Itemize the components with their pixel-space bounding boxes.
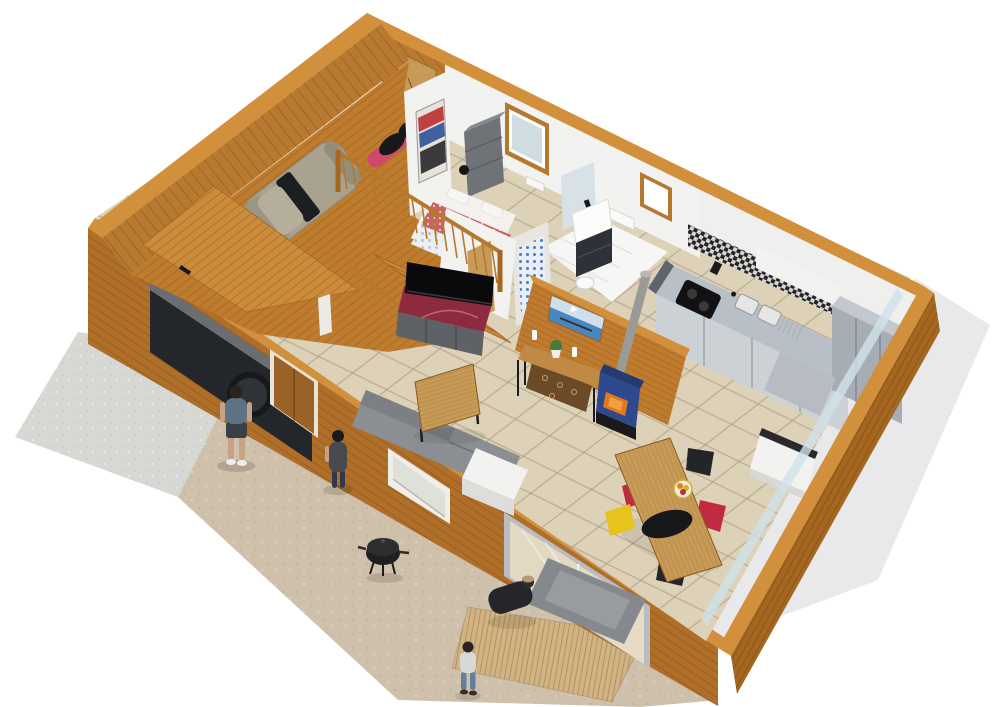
candle bbox=[532, 330, 537, 340]
t-shirt bbox=[225, 398, 247, 424]
floorplan-render bbox=[0, 0, 1000, 707]
small-white-door bbox=[318, 294, 332, 336]
hoodie bbox=[460, 652, 476, 673]
head bbox=[332, 430, 344, 442]
fruit-plate bbox=[674, 480, 692, 498]
head bbox=[230, 386, 243, 399]
pipe-cap bbox=[640, 271, 652, 278]
wall-lamp bbox=[459, 165, 469, 175]
floorplan-3d-view[interactable] bbox=[0, 0, 1000, 707]
candle bbox=[572, 347, 577, 357]
shorts bbox=[226, 422, 247, 438]
hair bbox=[522, 576, 534, 583]
wall-poster bbox=[416, 99, 447, 183]
head bbox=[463, 642, 474, 653]
top bbox=[329, 442, 347, 472]
